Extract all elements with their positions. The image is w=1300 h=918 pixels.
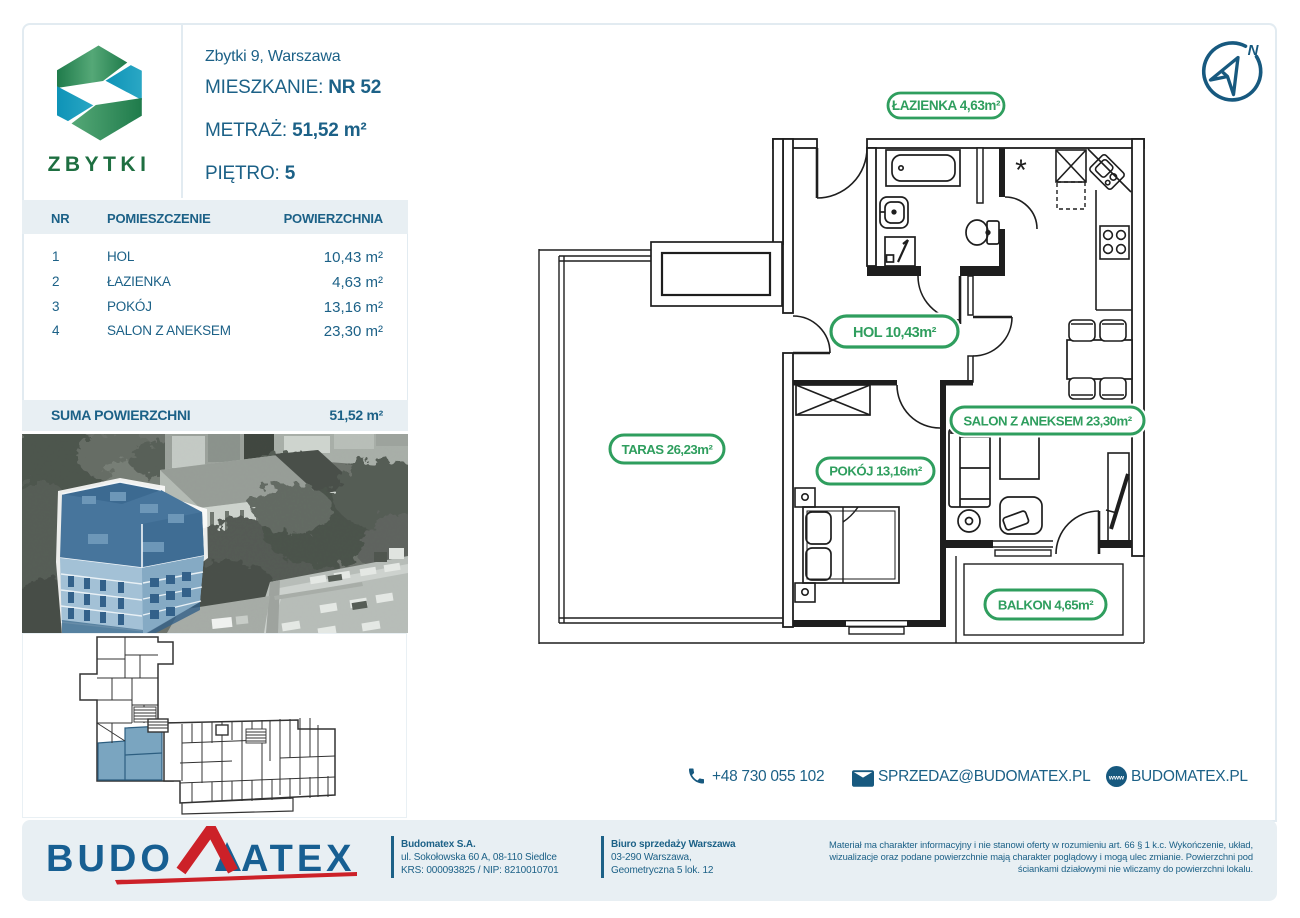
svg-text:BUDO: BUDO [46, 838, 174, 880]
svg-text:*: * [1015, 154, 1027, 187]
svg-text:TARAS 26,23m²: TARAS 26,23m² [622, 442, 714, 457]
svg-text:ZBYTKI: ZBYTKI [48, 153, 151, 176]
svg-text:BALKON 4,65m²: BALKON 4,65m² [998, 598, 1094, 613]
svg-text:www: www [1108, 775, 1125, 782]
svg-text:N: N [1248, 42, 1260, 59]
svg-text:POKÓJ 13,16m²: POKÓJ 13,16m² [829, 464, 923, 479]
svg-text:ŁAZIENKA 4,63m²: ŁAZIENKA 4,63m² [892, 98, 1001, 113]
svg-text:HOL 10,43m²: HOL 10,43m² [853, 325, 937, 341]
svg-text:SALON Z ANEKSEM 23,30m²: SALON Z ANEKSEM 23,30m² [963, 414, 1132, 429]
